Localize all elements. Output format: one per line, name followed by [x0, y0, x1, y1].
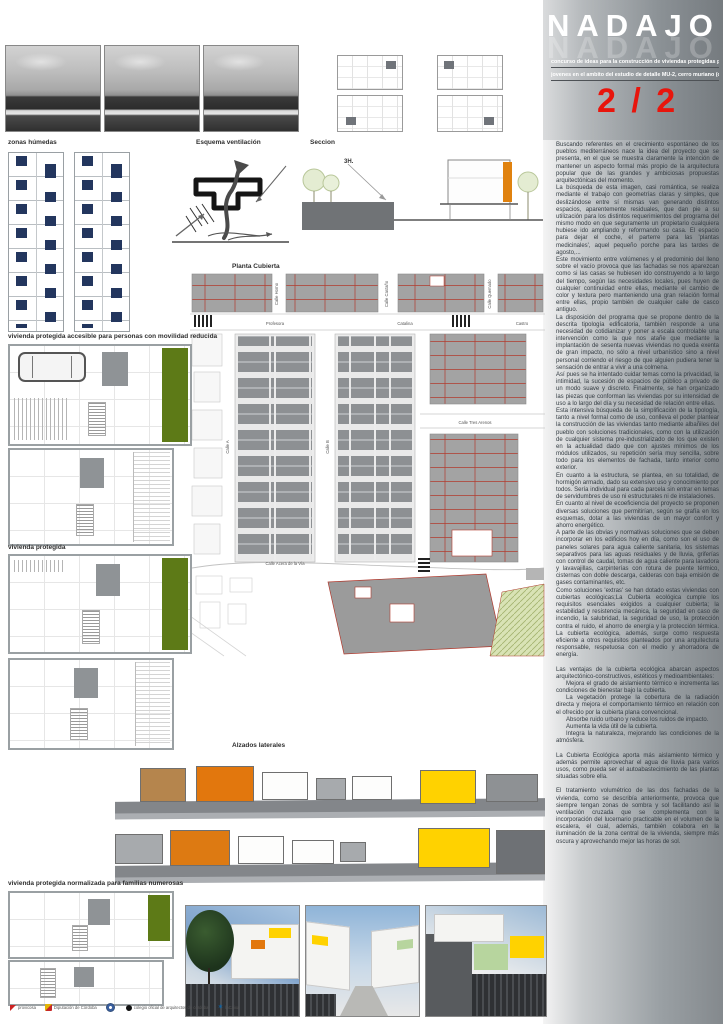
wet-core	[74, 668, 98, 698]
elevation-volume	[340, 842, 366, 862]
memoria-paragraph: Esta intensiva búsqueda de la simplifica…	[556, 408, 719, 473]
pergola-hatch	[14, 398, 70, 440]
pergola-hatch	[14, 560, 66, 572]
terrace-area	[135, 662, 170, 746]
site-photo-1	[5, 45, 101, 132]
street-label: Castro	[516, 321, 529, 326]
tree	[186, 910, 234, 972]
wet-zones-diagram-1	[8, 152, 64, 332]
elevation-volume	[170, 830, 230, 866]
street-label: Catalina	[397, 321, 413, 326]
stair	[76, 504, 94, 536]
logo-label: provicosa	[18, 1005, 36, 1010]
wet-core	[96, 564, 120, 596]
floor-plan-numerosas-upper	[8, 960, 164, 1006]
key-plan-lower	[437, 95, 503, 132]
elevation-volume	[238, 836, 284, 864]
lacaixa-star-icon: ✶	[218, 1005, 224, 1011]
divider	[36, 153, 37, 331]
elevation-volume	[292, 840, 334, 864]
memoria-paragraph: Este movimiento entre volúmenes y el pre…	[556, 257, 719, 315]
sheet-number: 2 / 2	[597, 82, 678, 121]
sponsor-logos: provicosa Diputación de Córdoba colegio …	[10, 1003, 239, 1012]
floor-plan-accessible-ground	[8, 344, 192, 446]
section-annotation: 3H.	[344, 159, 354, 165]
coa-logo-icon	[126, 1005, 132, 1011]
street-label: Calle Horno	[274, 282, 279, 305]
crosswalk	[418, 558, 430, 572]
street-label: Calle Quemado	[487, 279, 492, 309]
render-building	[371, 925, 419, 989]
wet-zones-diagram-2	[74, 152, 130, 332]
car-outline	[18, 352, 86, 382]
label-esquema-ventilacion: Esquema ventilación	[196, 139, 261, 146]
terrace-area	[133, 452, 170, 542]
wet-core	[74, 967, 94, 987]
render-building	[306, 921, 350, 990]
street-label: Calle Castaño	[384, 280, 389, 307]
label-planta-cubierta: Planta Cubierta	[232, 263, 280, 270]
existing-buildings	[196, 576, 252, 628]
elevation-volume	[140, 768, 186, 802]
memoria-text: Buscando referentes en el crecimiento es…	[556, 142, 719, 846]
garden-area	[162, 558, 188, 650]
divider	[102, 153, 103, 331]
elevation-volume	[496, 830, 545, 874]
memoria-paragraph: La vegetación protege la cobertura de la…	[556, 695, 719, 717]
elevation-volume	[352, 776, 392, 800]
garden-area	[148, 895, 170, 941]
elevation-volume	[262, 772, 308, 800]
memoria-paragraph: Las ventajas de la cubierta ecológica ab…	[556, 667, 719, 681]
render-image-3	[425, 905, 547, 1017]
street-label: Profesora	[266, 321, 285, 326]
diputacion-logo-icon	[45, 1004, 52, 1011]
wet-core	[88, 899, 110, 925]
dark-wall	[426, 934, 472, 1016]
fence	[306, 994, 336, 1016]
logo-label: laCaixa	[225, 1005, 239, 1010]
ventilation-sketch	[168, 150, 293, 255]
memoria-paragraph: En cuanto al nivel de ecoeficiencia del …	[556, 501, 719, 530]
key-plan-lower	[337, 95, 403, 132]
label-zonas-humedas: zonas húmedas	[8, 139, 57, 146]
logo-colegio-arquitectos: colegio oficial de arquitectos de córdob…	[126, 1005, 209, 1011]
memoria-paragraph: Integra la naturaleza, mejorando las con…	[556, 731, 719, 745]
stair	[88, 402, 106, 436]
floor-plan-numerosas-ground	[8, 891, 174, 959]
street-label: Calle B	[325, 440, 330, 454]
label-vivienda-numerosas: vivienda protegida normalizada para fami…	[8, 880, 183, 887]
logo-label: colegio oficial de arquitectos de córdob…	[134, 1005, 209, 1010]
green-facade-accent	[474, 944, 508, 970]
logo-label: Diputación de Córdoba	[54, 1005, 97, 1010]
render-image-2	[305, 905, 420, 1017]
stair	[40, 968, 56, 998]
logo-lacaixa: ✶ laCaixa	[218, 1005, 240, 1011]
key-plan-upper	[337, 55, 403, 90]
yellow-facade-accent	[510, 936, 544, 958]
key-plan-thumbnails-1	[337, 55, 403, 131]
memoria-paragraph: Así pues se ha intentado cuidar temas co…	[556, 372, 719, 408]
site-photo-2	[104, 45, 200, 132]
site-plan: Calle Horno Calle Castaño Calle Quemado …	[190, 272, 545, 657]
key-plan-upper	[437, 55, 503, 90]
memoria-paragraph: Absorbe ruido urbano y reduce los ruidos…	[556, 717, 719, 724]
memoria-paragraph: Aumenta la vida útil de la cubierta.	[556, 724, 719, 731]
stair	[82, 610, 100, 644]
section-drawing: 3H.	[300, 150, 545, 250]
logo-emblem	[106, 1003, 117, 1012]
key-plan-thumbnails-2	[437, 55, 503, 131]
floor-plan-protegida-ground	[8, 554, 192, 654]
provicosa-logo-icon	[10, 1005, 16, 1011]
plan-core-block	[484, 117, 494, 125]
plan-core-block	[386, 61, 396, 69]
existing-plots	[192, 334, 222, 554]
label-alzados-laterales: Alzados laterales	[232, 742, 285, 749]
memoria-paragraph: En cuanto a la estructura, se plantea, e…	[556, 473, 719, 502]
memoria-paragraph: Como soluciones 'extras' se han dotado e…	[556, 588, 719, 660]
panel-subtitle-line1: concurso de ideas para la construcción d…	[551, 59, 719, 68]
render-building	[434, 914, 504, 942]
floor-plan-protegida-upper	[8, 658, 174, 750]
panel-subtitle-line2: jovenes en el ambito del estudio de deta…	[551, 72, 719, 81]
fence	[472, 974, 546, 1016]
elevation-volume	[486, 774, 538, 802]
crosswalk	[194, 315, 470, 327]
render-image-1	[185, 905, 300, 1017]
memoria-paragraph: La Cubierta Ecológica aporta más aislami…	[556, 753, 719, 782]
panel-title: NADAJO	[547, 8, 723, 44]
logo-provicosa: provicosa	[10, 1005, 36, 1011]
street-label: Calle Tres Arenos	[458, 420, 491, 425]
plan-core-block	[346, 117, 356, 125]
yellow-facade-accent	[312, 935, 328, 946]
elevation-volume	[418, 828, 490, 868]
orange-facade-accent	[251, 940, 265, 949]
logo-diputacion-cordoba: Diputación de Córdoba	[45, 1004, 97, 1011]
memoria-paragraph: El tratamiento volumétrico de las dos fa…	[556, 788, 719, 846]
competition-panel: NADAJO NADAJO concurso de ideas para la …	[0, 0, 723, 1024]
memoria-paragraph: Buscando referentes en el crecimiento es…	[556, 142, 719, 185]
site-photo-3	[203, 45, 299, 132]
elevation-volume	[316, 778, 346, 800]
label-vivienda-protegida: vivienda protegida	[8, 544, 65, 551]
elevation-volume	[196, 766, 254, 802]
memoria-paragraph: A parte de las obvias y normativas soluc…	[556, 530, 719, 588]
memoria-paragraph: Mejora el grado de aislamiento térmico e…	[556, 681, 719, 695]
street-label: Calle Acera de la Vía	[265, 561, 305, 566]
wet-core	[80, 458, 104, 488]
yellow-facade-accent	[269, 928, 291, 938]
memoria-paragraph: La búsqueda de esta imagen, casi románti…	[556, 185, 719, 257]
floor-plan-accessible-upper	[8, 448, 174, 546]
label-seccion: Seccion	[310, 139, 335, 146]
wet-core	[102, 352, 128, 386]
label-vivienda-accesible: vivienda protegida accesible para person…	[8, 333, 217, 340]
plan-core-block	[444, 61, 454, 69]
stair	[70, 708, 88, 740]
elevation-volume	[115, 834, 163, 864]
street-pavement	[340, 986, 388, 1016]
garden-area	[162, 348, 188, 442]
elevation-volume	[420, 770, 476, 804]
street-label: Calle A	[225, 440, 230, 453]
emblem-logo-icon	[106, 1003, 115, 1012]
stair	[72, 925, 88, 951]
memoria-paragraph: La disposición del programa que se propo…	[556, 315, 719, 373]
